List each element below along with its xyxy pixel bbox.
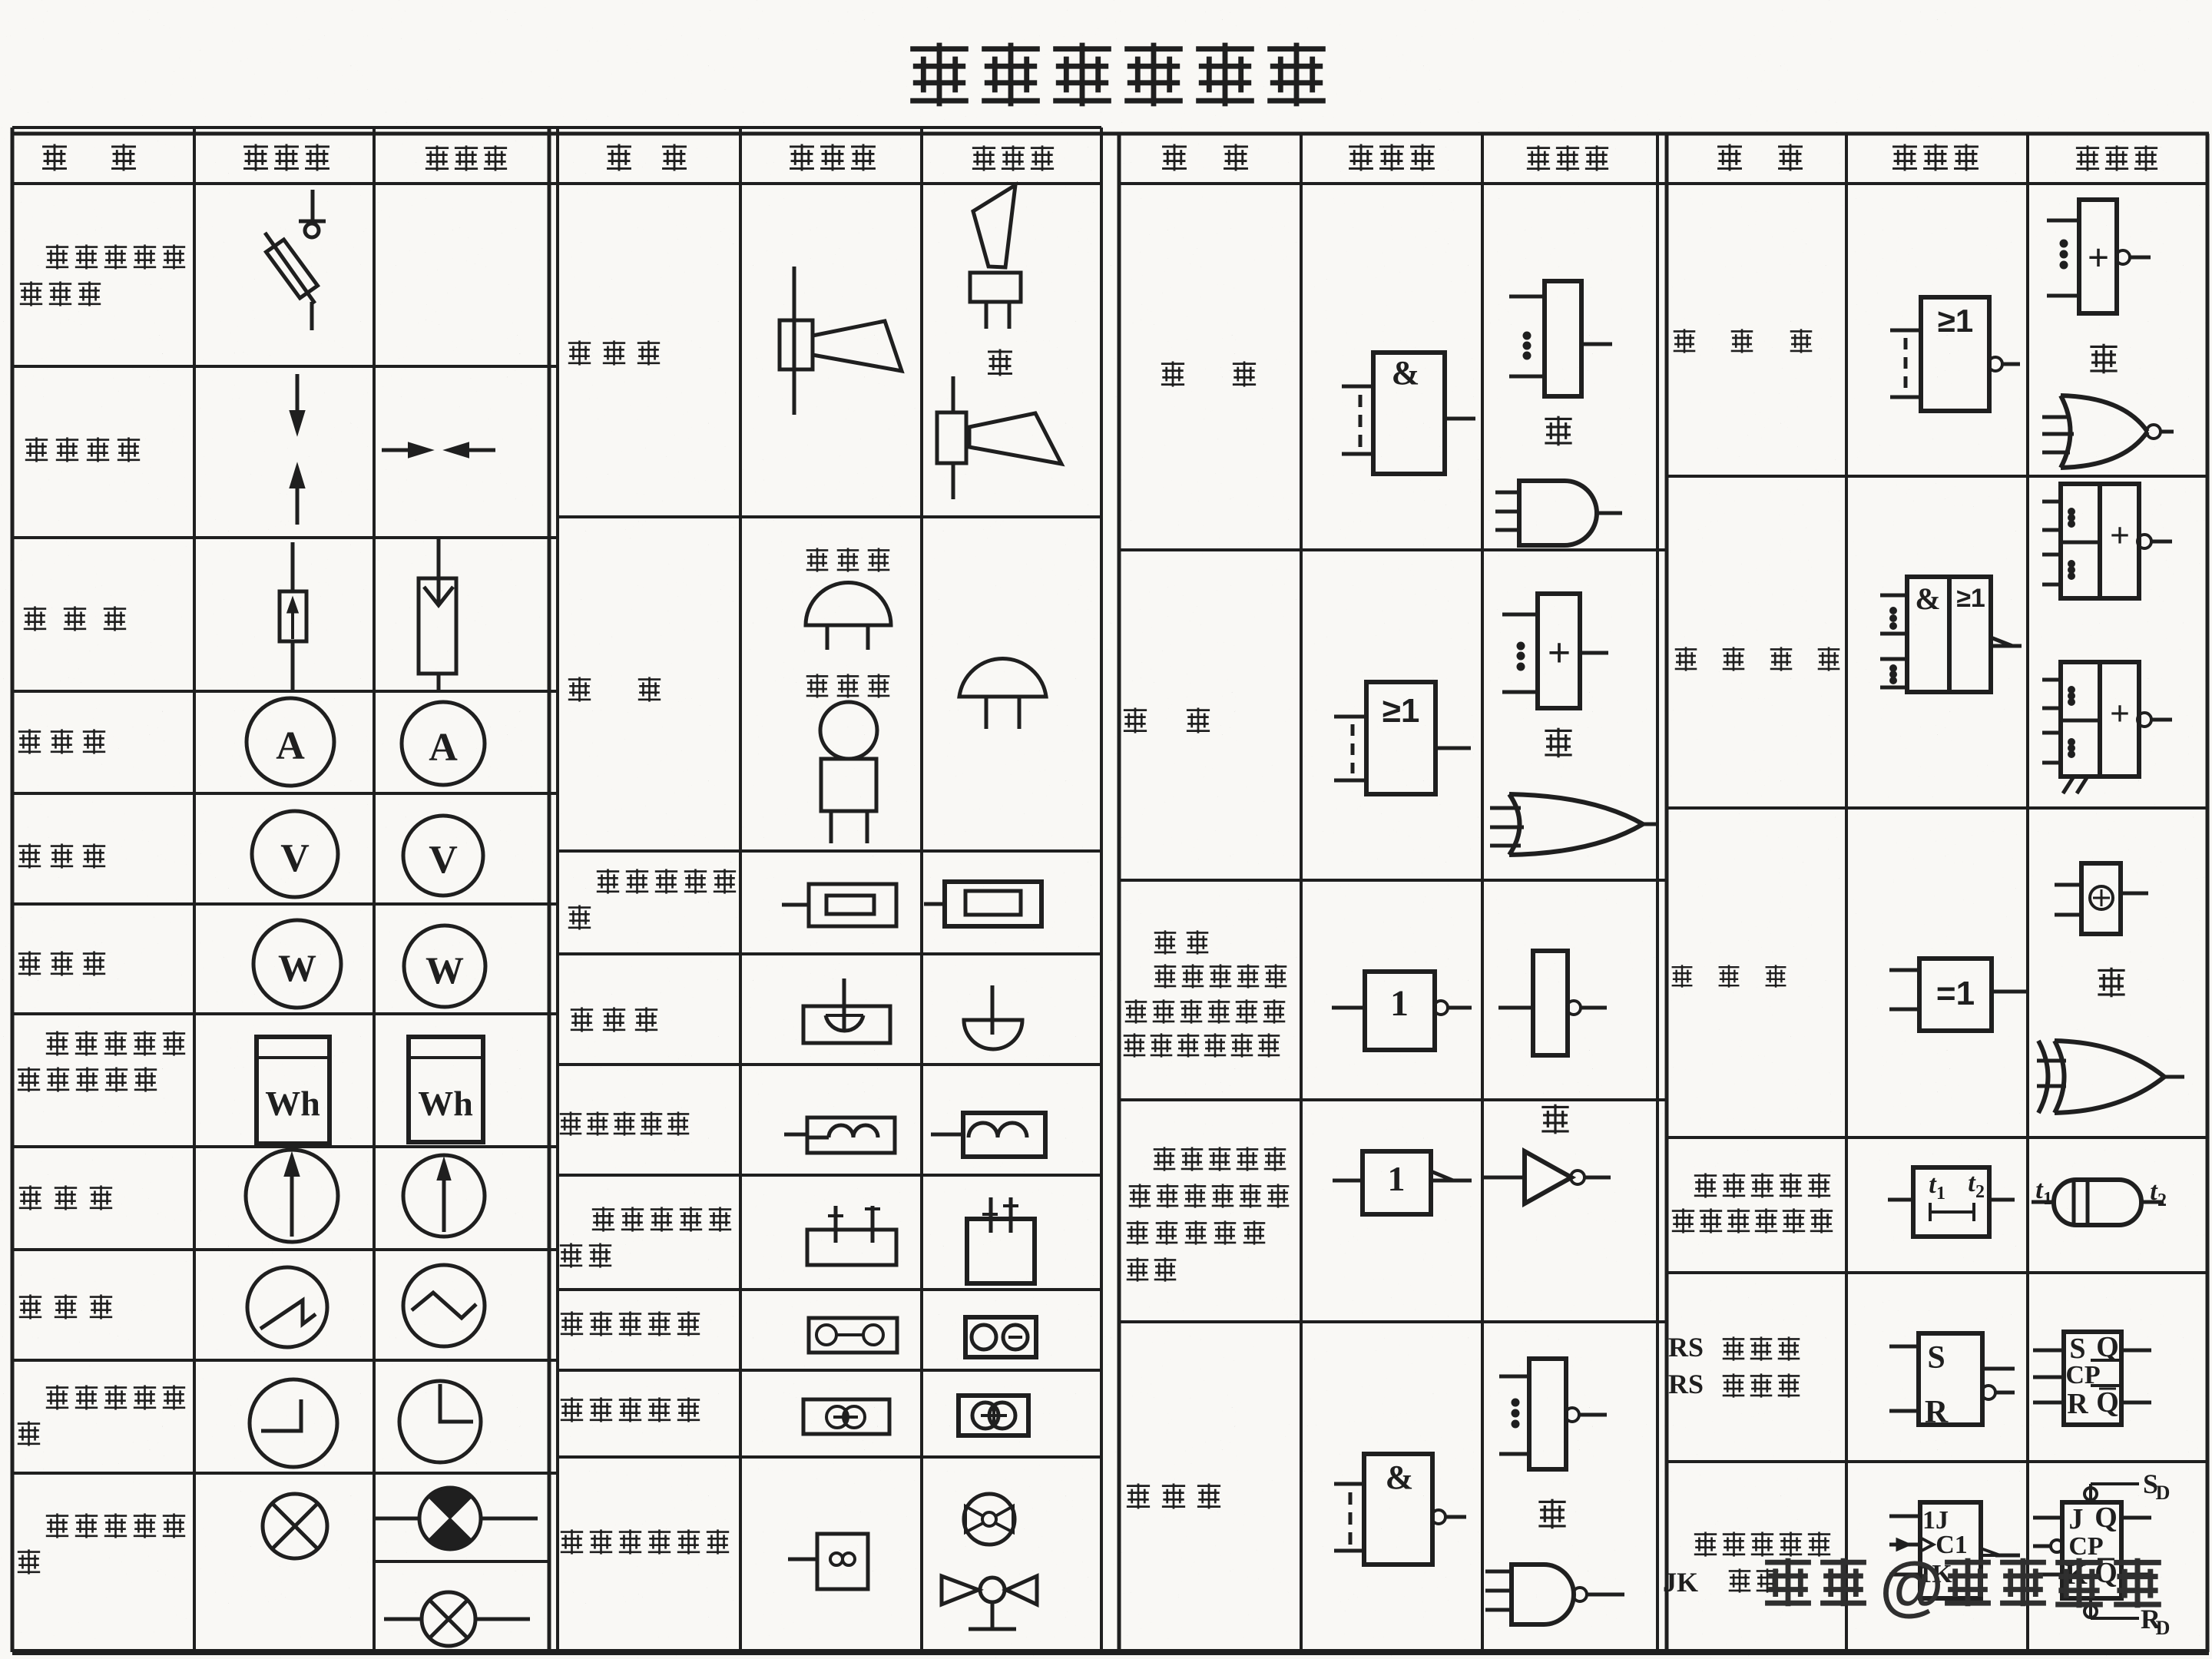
svg-text:D: D	[2156, 1617, 2171, 1639]
svg-text:Q: Q	[2096, 1386, 2119, 1419]
svg-text:+: +	[2110, 515, 2130, 555]
svg-text:2: 2	[1975, 1182, 1985, 1202]
svg-text:D: D	[2156, 1482, 2171, 1504]
svg-text:Q: Q	[2096, 1331, 2119, 1363]
svg-text:A: A	[429, 726, 458, 770]
svg-text:A: A	[276, 724, 305, 768]
svg-text:R: R	[1925, 1395, 1949, 1430]
svg-text:=1: =1	[1936, 975, 1975, 1012]
svg-text:Wh: Wh	[265, 1084, 320, 1123]
svg-text:Wh: Wh	[418, 1084, 473, 1123]
svg-text:J: J	[2069, 1503, 2084, 1535]
svg-text:+: +	[2088, 236, 2110, 279]
svg-text:@: @	[1879, 1549, 1944, 1623]
svg-text:&: &	[1386, 1459, 1414, 1496]
svg-text:S: S	[1927, 1340, 1945, 1376]
svg-text:JK: JK	[1663, 1567, 1698, 1598]
svg-text:&: &	[1392, 354, 1420, 392]
svg-text:W: W	[426, 949, 464, 992]
svg-text:&: &	[1915, 581, 1940, 616]
svg-text:≥1: ≥1	[1938, 303, 1973, 339]
svg-text:R: R	[2067, 1388, 2088, 1420]
svg-text:+: +	[2110, 694, 2130, 733]
svg-text:V: V	[429, 838, 458, 882]
svg-text:Q: Q	[2094, 1502, 2118, 1534]
svg-text:1: 1	[1390, 983, 1409, 1024]
svg-text:RS: RS	[1668, 1332, 1704, 1363]
svg-text:W: W	[278, 946, 316, 989]
svg-text:≥1: ≥1	[1382, 692, 1420, 730]
svg-text:V: V	[280, 836, 310, 880]
svg-text:1: 1	[1936, 1184, 1945, 1204]
svg-text:CP: CP	[2065, 1361, 2100, 1389]
svg-text:RS: RS	[1668, 1369, 1704, 1399]
svg-text:1: 1	[1388, 1159, 1406, 1198]
svg-text:S: S	[2069, 1333, 2085, 1365]
svg-text:+: +	[1548, 630, 1571, 676]
svg-text:1: 1	[2043, 1189, 2052, 1209]
svg-text:≥1: ≥1	[1956, 584, 1985, 613]
